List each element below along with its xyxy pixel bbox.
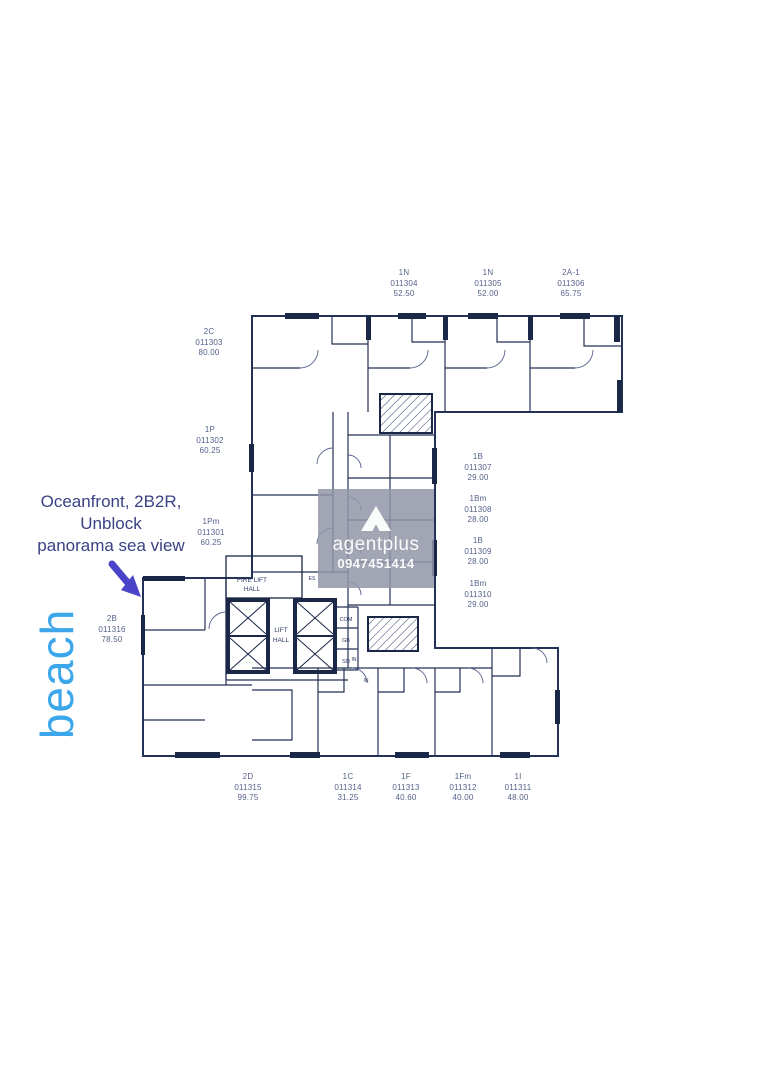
unit-label-2C: 2C01130380.00 [177,327,241,359]
lift-hall-label: HALL [273,637,290,644]
unit-label-1N-011305: 1N01130552.00 [456,268,520,300]
in-room-label: IN [364,678,369,684]
watermark-phone: 0947451414 [337,556,414,571]
unit-label-2B: 2B01131678.50 [80,614,144,646]
gb-room-label: GB [342,638,350,644]
arrow-icon [112,564,141,597]
unit-label-1N-011304: 1N01130452.50 [372,268,436,300]
listing-image: FIRE LIFT HALL LIFT HALL COM GB SN ES IN… [0,0,760,1080]
unit-label-1B-011309: 1B01130928.00 [446,536,510,568]
com-room-label: COM [340,617,353,623]
unit-label-2D: 2D01131599.75 [216,772,280,804]
unit-label-1Bm-011308: 1Bm01130828.00 [446,494,510,526]
unit-label-1Bm-011310: 1Bm01131029.00 [446,579,510,611]
fire-lift-hall-label: FIRE LIFT [237,577,267,584]
annotation-text: Oceanfront, 2B2R, Unblock panorama sea v… [26,491,196,557]
unit-label-1I: 1I01131148.00 [486,772,550,804]
es-room-label: ES [309,576,316,582]
sn-room-label: SN [342,659,350,665]
agentplus-logo-icon [361,506,391,531]
watermark-brand: agentplus [333,534,420,556]
in-room-label: IN [352,657,357,663]
fire-lift-hall-label: HALL [244,586,261,593]
unit-label-1C: 1C01131431.25 [316,772,380,804]
watermark: agentplus 0947451414 [318,489,434,588]
lift-hall-label: LIFT [274,627,287,634]
beach-label: beach [30,574,80,774]
unit-label-2A-1: 2A-101130665.75 [539,268,603,300]
unit-label-1F: 1F01131340.60 [374,772,438,804]
unit-label-1B-011307: 1B01130729.00 [446,452,510,484]
unit-label-1P: 1P01130260.25 [178,425,242,457]
